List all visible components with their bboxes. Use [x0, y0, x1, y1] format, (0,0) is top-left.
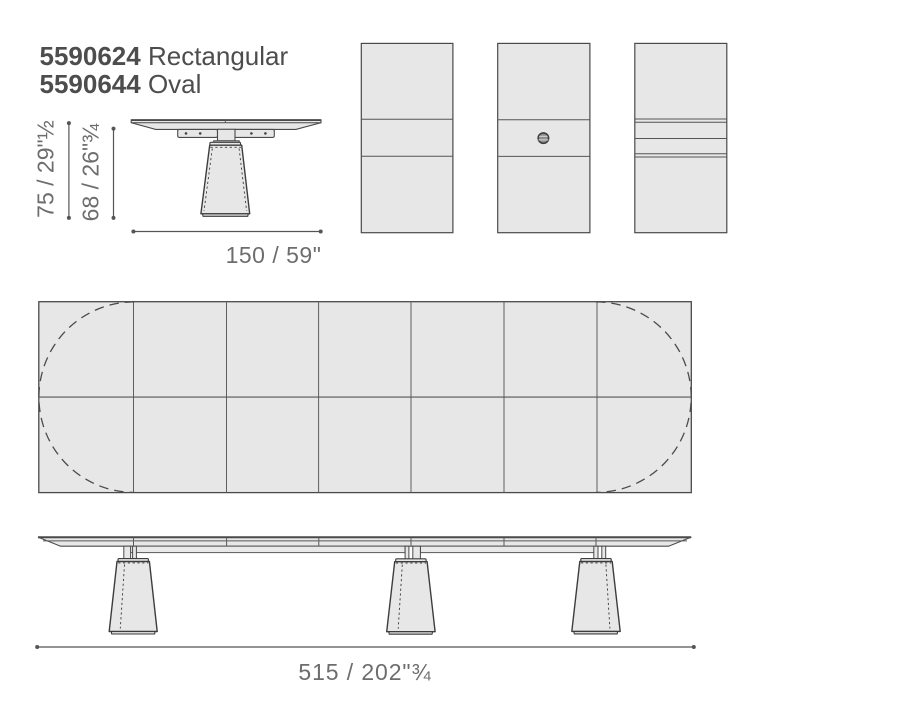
svg-text:75 / 29"½: 75 / 29"½ — [33, 120, 59, 218]
svg-text:150 / 59": 150 / 59" — [226, 242, 322, 268]
svg-text:515 / 202"¾: 515 / 202"¾ — [298, 659, 431, 685]
svg-text:5590644 Oval: 5590644 Oval — [40, 69, 202, 99]
svg-text:5590624 Rectangular: 5590624 Rectangular — [40, 41, 289, 71]
svg-text:68 / 26"¾: 68 / 26"¾ — [77, 123, 103, 222]
